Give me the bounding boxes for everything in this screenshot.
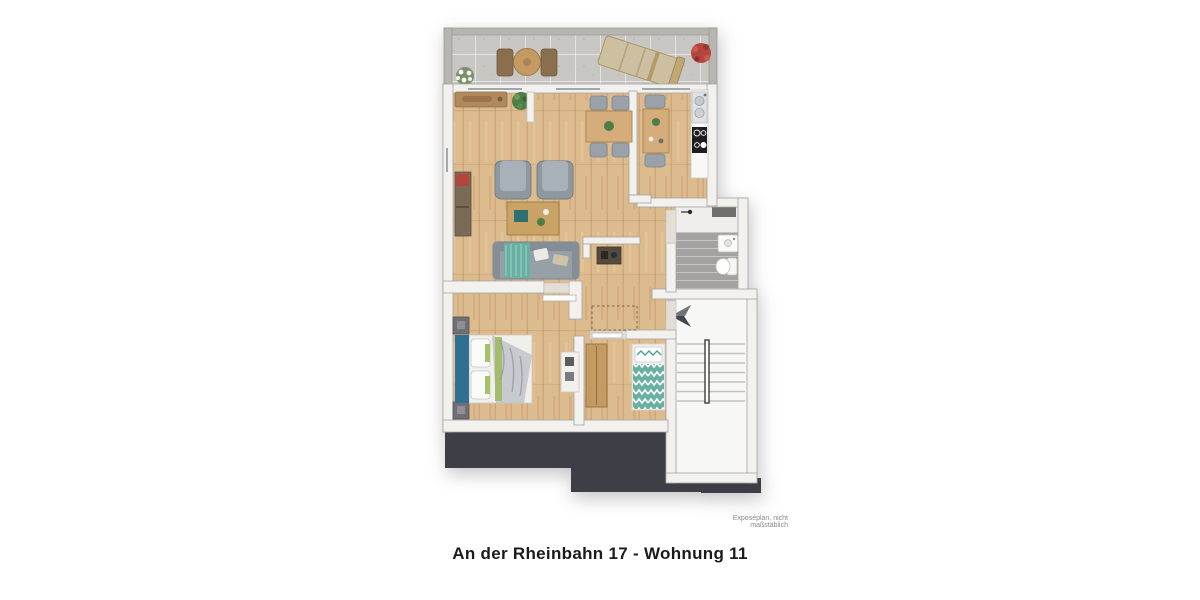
- bedroom-door-opening: [544, 283, 569, 293]
- outer-wall-left: [443, 84, 453, 432]
- tall-cabinet: [455, 172, 471, 236]
- balcony-table-set: [497, 49, 557, 77]
- bathroom-door-opening: [666, 210, 676, 243]
- bath-sink: [718, 235, 738, 252]
- entry-door-opening: [666, 301, 676, 332]
- armchair: [537, 161, 573, 199]
- plan-title: An der Rheinbahn 17 - Wohnung 11: [0, 544, 1200, 564]
- hallway-wall-corner: [583, 244, 590, 258]
- shower-shelf: [712, 206, 736, 217]
- balcony-wall-left: [444, 28, 452, 88]
- plan-disclaimer: Exposéplan, nicht maßstäblich: [698, 515, 788, 529]
- double-bed: [455, 335, 532, 403]
- blanket: [633, 364, 664, 409]
- wall-shelf: [527, 92, 534, 122]
- hallway-wall-top: [583, 237, 640, 244]
- single-bed: [632, 344, 665, 410]
- dining-chair: [590, 143, 607, 157]
- stair-railing: [705, 340, 709, 403]
- sofa: [493, 242, 579, 279]
- dining-chair: [612, 143, 629, 157]
- sideboard: [455, 92, 507, 107]
- stairwell-wall-right: [747, 293, 757, 483]
- outer-wall-right: [707, 84, 717, 206]
- kitchen-sink: [692, 92, 707, 123]
- balcony-wall-right: [709, 28, 717, 88]
- floorplan-drawing: [0, 0, 1200, 600]
- bathroom-wall-top: [637, 198, 748, 207]
- pillow: [635, 347, 662, 362]
- toilet: [716, 258, 737, 275]
- red-plant: [691, 43, 711, 63]
- kitchen-divider-stub: [629, 195, 651, 203]
- coffee-table: [507, 202, 559, 235]
- nightstand: [453, 317, 469, 334]
- kitchen-divider-wall: [629, 91, 637, 195]
- bedroom-wall-top: [443, 281, 544, 293]
- stairwell-wall-bottom: [666, 473, 757, 483]
- stairwell: [666, 293, 757, 483]
- breakfast-table: [643, 109, 669, 153]
- wardrobe: [586, 344, 607, 407]
- balcony: [444, 28, 717, 91]
- bathroom-wall-right: [738, 198, 748, 298]
- dresser: [561, 352, 579, 392]
- balcony-wall-top: [444, 28, 717, 35]
- dining-table: [586, 111, 632, 142]
- kidsroom-wall-top: [626, 330, 676, 339]
- stairwell-wall-left: [666, 332, 676, 483]
- armchair: [495, 161, 531, 199]
- kitchen-chair: [645, 154, 665, 167]
- kidsroom-door-leaf: [592, 333, 622, 338]
- shoe-shelf: [597, 247, 621, 264]
- kitchen-chair: [645, 95, 665, 108]
- dining-chair: [590, 96, 607, 110]
- outer-wall-bottom: [443, 420, 668, 432]
- dining-chair: [612, 96, 629, 110]
- nightstand: [453, 402, 469, 419]
- bathroom-wall-left: [666, 243, 676, 292]
- cooktop: [692, 127, 707, 153]
- bedroom-door-leaf: [543, 295, 576, 301]
- floorplan-page: An der Rheinbahn 17 - Wohnung 11 Exposép…: [0, 0, 1200, 600]
- headboard: [455, 335, 469, 403]
- white-flower-plant: [456, 67, 474, 85]
